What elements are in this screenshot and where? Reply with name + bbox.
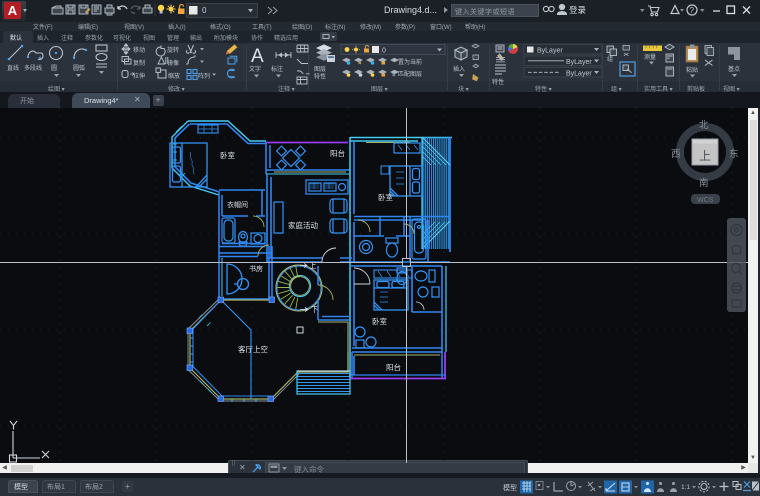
svg-text:文字: 文字 bbox=[249, 65, 261, 73]
svg-text:ByLayer: ByLayer bbox=[566, 71, 592, 78]
svg-text:A: A bbox=[251, 46, 264, 67]
svg-text:多段线: 多段线 bbox=[24, 64, 42, 72]
svg-text:阵列: 阵列 bbox=[198, 72, 210, 80]
svg-text:书房: 书房 bbox=[249, 264, 263, 273]
svg-text:阳台: 阳台 bbox=[330, 148, 345, 158]
svg-text:图层: 图层 bbox=[314, 66, 326, 73]
svg-text:南: 南 bbox=[699, 177, 709, 189]
svg-text:家庭活动: 家庭活动 bbox=[288, 220, 318, 230]
svg-text:西: 西 bbox=[671, 149, 681, 160]
svg-text:ByLayer: ByLayer bbox=[566, 59, 592, 66]
svg-text:WCS: WCS bbox=[697, 197, 714, 204]
svg-text:圆弧: 圆弧 bbox=[73, 64, 85, 72]
svg-text:特性: 特性 bbox=[492, 78, 504, 86]
svg-text:衣帽间: 衣帽间 bbox=[227, 200, 248, 209]
svg-text:卧室: 卧室 bbox=[372, 316, 387, 326]
svg-text:匹配图层: 匹配图层 bbox=[398, 71, 422, 78]
svg-text:缩放: 缩放 bbox=[168, 72, 180, 80]
svg-text:镜像: 镜像 bbox=[167, 59, 179, 67]
svg-text:ByLayer: ByLayer bbox=[537, 48, 563, 55]
svg-text:卧室: 卧室 bbox=[378, 192, 393, 202]
svg-text:置为当前: 置为当前 bbox=[398, 58, 422, 66]
svg-text:1:1: 1:1 bbox=[681, 484, 690, 491]
svg-text:卧室: 卧室 bbox=[220, 150, 235, 160]
svg-text:基点: 基点 bbox=[728, 65, 740, 73]
svg-text:测量: 测量 bbox=[644, 53, 656, 61]
svg-text:客厅上空: 客厅上空 bbox=[238, 344, 268, 354]
svg-text:旋转: 旋转 bbox=[167, 46, 179, 54]
svg-text:0: 0 bbox=[382, 48, 386, 55]
svg-text:?: ? bbox=[690, 6, 695, 15]
svg-text:圆: 圆 bbox=[51, 65, 57, 72]
svg-text:粘贴: 粘贴 bbox=[686, 66, 698, 74]
svg-text:东: 东 bbox=[729, 148, 739, 160]
svg-text:上: 上 bbox=[699, 149, 711, 163]
svg-text:登录: 登录 bbox=[569, 5, 587, 15]
svg-text:北: 北 bbox=[699, 120, 709, 131]
svg-text:直线: 直线 bbox=[7, 64, 19, 72]
svg-text:模型: 模型 bbox=[503, 483, 517, 492]
svg-text:复制: 复制 bbox=[133, 59, 145, 67]
svg-text:阳台: 阳台 bbox=[386, 362, 401, 372]
svg-text:标注: 标注 bbox=[271, 65, 283, 73]
svg-text:插入: 插入 bbox=[453, 65, 465, 73]
svg-text:拉伸: 拉伸 bbox=[133, 72, 145, 80]
svg-text:移动: 移动 bbox=[133, 46, 145, 54]
svg-text:0: 0 bbox=[202, 6, 207, 15]
svg-text:特性: 特性 bbox=[314, 73, 326, 81]
svg-text:组: 组 bbox=[607, 55, 613, 63]
